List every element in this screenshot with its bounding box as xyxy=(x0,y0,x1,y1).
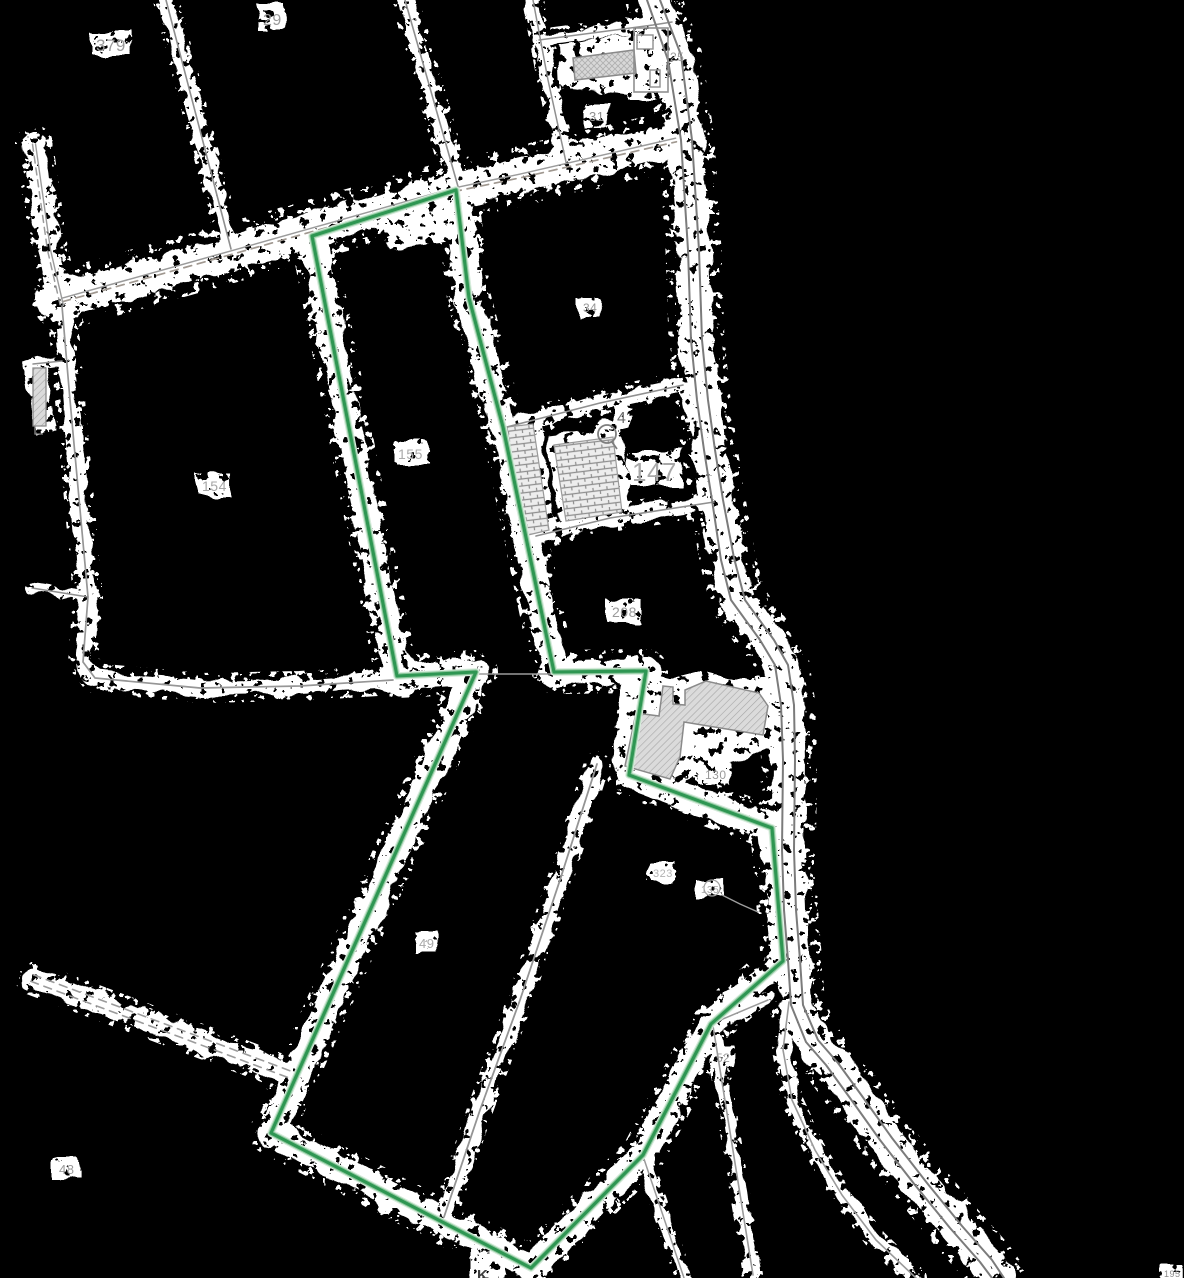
svg-text:155: 155 xyxy=(398,446,423,462)
svg-text:29: 29 xyxy=(263,12,282,29)
svg-text:208: 208 xyxy=(612,604,637,620)
svg-text:323: 323 xyxy=(653,868,673,880)
svg-text:4: 4 xyxy=(617,410,626,427)
svg-text:379: 379 xyxy=(96,36,126,55)
svg-text:49: 49 xyxy=(419,936,434,951)
svg-text:135: 135 xyxy=(701,885,719,896)
svg-text:147: 147 xyxy=(632,457,677,487)
svg-text:K: K xyxy=(477,1267,488,1278)
svg-text:48: 48 xyxy=(59,1162,74,1177)
svg-text:195: 195 xyxy=(1164,1269,1181,1278)
svg-text:34: 34 xyxy=(583,301,597,315)
svg-text:31: 31 xyxy=(589,109,604,124)
svg-text:130: 130 xyxy=(705,768,727,782)
svg-text:25: 25 xyxy=(670,50,684,64)
svg-text:154: 154 xyxy=(202,478,227,494)
svg-text:52: 52 xyxy=(716,1051,730,1065)
